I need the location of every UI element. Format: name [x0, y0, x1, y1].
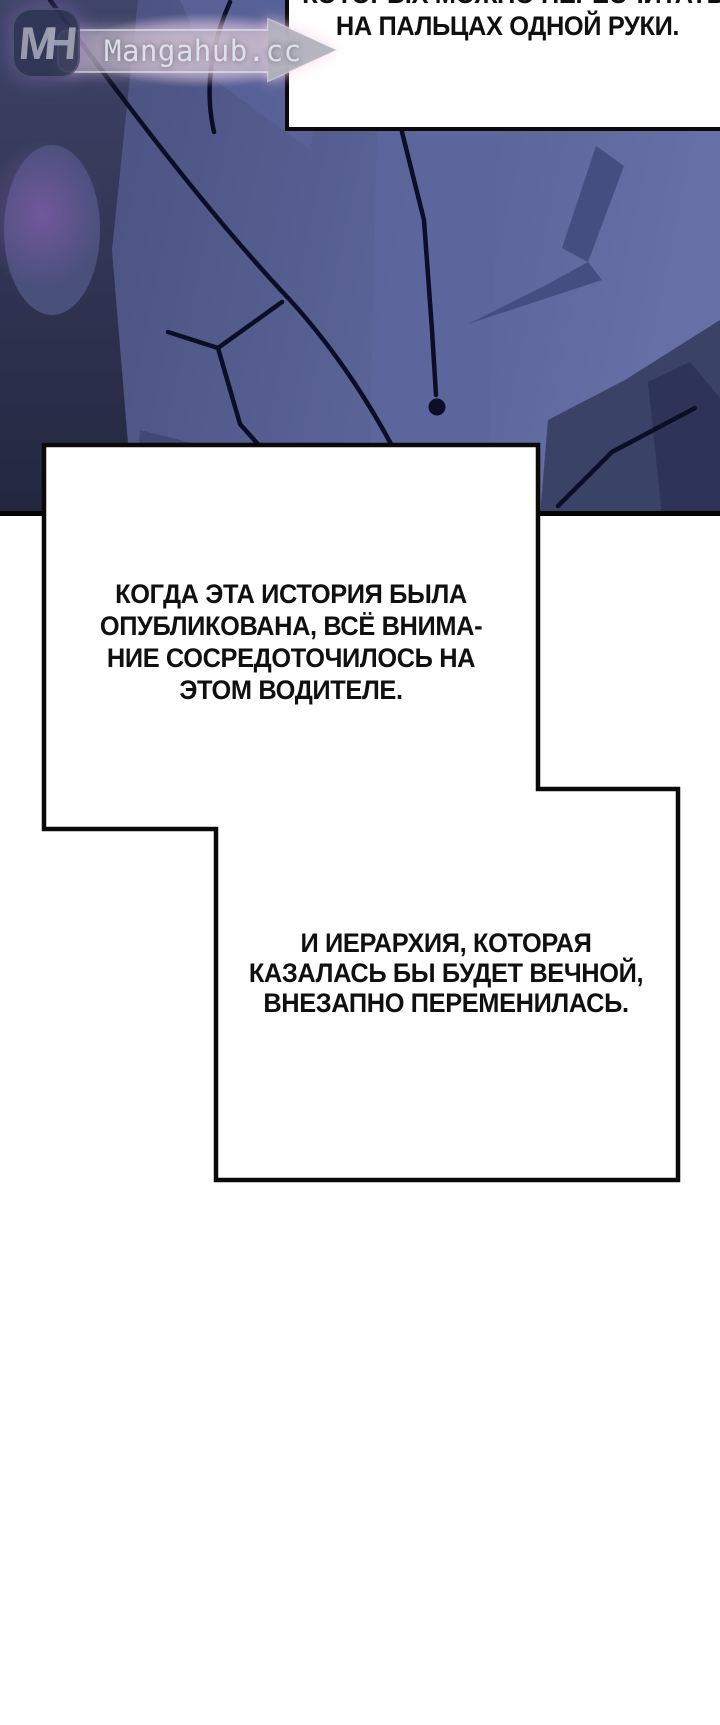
manga-page: КОТОРЫХ МОЖНО ПЕРЕСЧИТАТЬ НА ПАЛЬЦАХ ОДН…	[0, 0, 720, 1725]
bubble-line: ЭТОМ ВОДИТЕЛЕ.	[59, 674, 523, 706]
watermark: Mangahub.cc MH	[0, 0, 380, 110]
bubble-line: КОГДА ЭТА ИСТОРИЯ БЫЛА	[59, 578, 523, 610]
bubble-line: КАЗАЛАСЬ БЫ БУДЕТ ВЕЧНОЙ,	[231, 958, 662, 988]
bubble-line: И ИЕРАРХИЯ, КОТОРАЯ	[231, 928, 662, 958]
panel-bottom-border	[0, 511, 720, 516]
speech-bubble-bottom-text: И ИЕРАРХИЯ, КОТОРАЯ КАЗАЛАСЬ БЫ БУДЕТ ВЕ…	[231, 928, 662, 1018]
suit-button	[429, 399, 446, 416]
bubble-line: НИЕ СОСРЕДОТОЧИЛОСЬ НА	[59, 642, 523, 674]
bubble-line: ВНЕЗАПНО ПЕРЕМЕНИЛАСЬ.	[231, 988, 662, 1018]
bubble-line: ОПУБЛИКОВАНА, ВСЁ ВНИМА-	[59, 610, 523, 642]
speech-bubble-middle-text: КОГДА ЭТА ИСТОРИЯ БЫЛА ОПУБЛИКОВАНА, ВСЁ…	[59, 578, 523, 706]
mh-logo-text: MH	[16, 8, 82, 78]
mh-logo: MH	[12, 8, 80, 78]
watermark-site-text: Mangahub.cc	[104, 33, 300, 69]
